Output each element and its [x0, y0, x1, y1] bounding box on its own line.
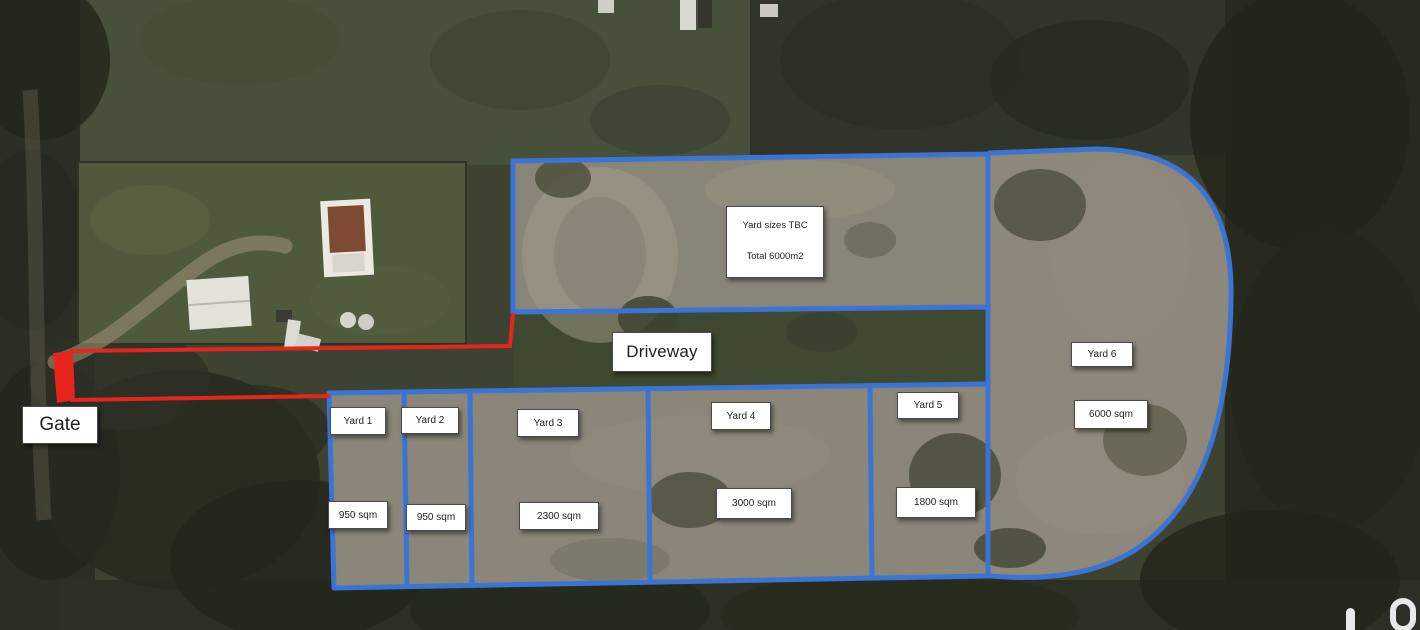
- yard6-name-label: Yard 6: [1071, 342, 1133, 367]
- compass-ring-icon[interactable]: [1390, 598, 1416, 630]
- person-marker-icon[interactable]: [1346, 608, 1355, 630]
- yard5-size-label: 1800 sqm: [896, 487, 976, 518]
- yard6-size-label: 6000 sqm: [1074, 400, 1148, 429]
- aerial-photo-background: [0, 0, 1420, 630]
- yard4-yard5-divider: [870, 386, 872, 580]
- note-line1: Yard sizes TBC: [742, 221, 807, 231]
- yard5-name-label: Yard 5: [897, 392, 959, 419]
- note-line2: Total 6000m2: [746, 252, 803, 262]
- yard3-yard4-divider: [648, 388, 650, 583]
- yard2-name-label: Yard 2: [401, 407, 459, 434]
- gate-label: Gate: [22, 406, 98, 444]
- yard1-size-label: 950 sqm: [328, 501, 388, 529]
- yard1-name-label: Yard 1: [330, 407, 386, 435]
- yard3-size-label: 2300 sqm: [519, 502, 599, 530]
- yard4-size-label: 3000 sqm: [716, 488, 792, 519]
- site-plan-map: Yard sizes TBC Total 6000m2 Driveway Gat…: [0, 0, 1420, 630]
- map-controls: [1338, 596, 1420, 630]
- yard2-yard3-divider: [470, 390, 472, 585]
- note-box: Yard sizes TBC Total 6000m2: [726, 206, 824, 278]
- driveway-label: Driveway: [612, 332, 712, 372]
- yard2-size-label: 950 sqm: [406, 504, 466, 531]
- yard4-name-label: Yard 4: [711, 402, 771, 430]
- yard3-name-label: Yard 3: [517, 409, 579, 437]
